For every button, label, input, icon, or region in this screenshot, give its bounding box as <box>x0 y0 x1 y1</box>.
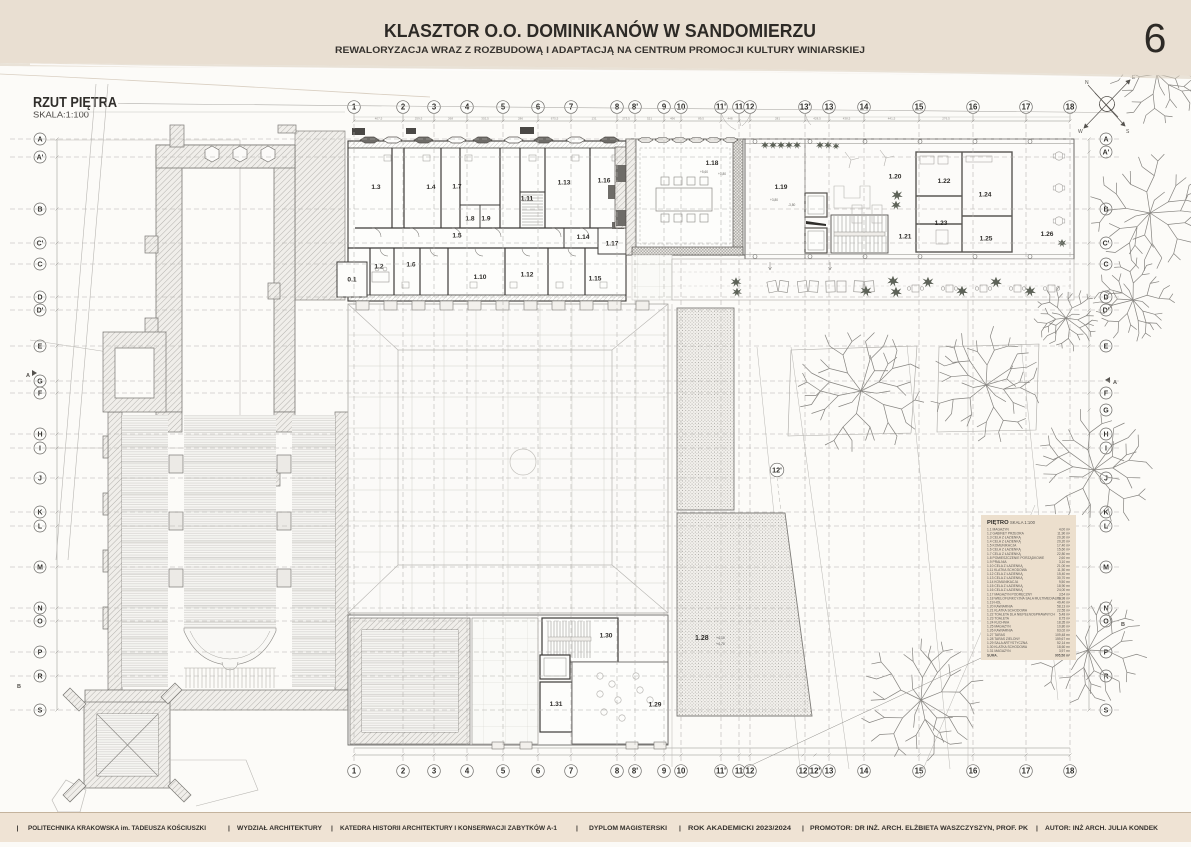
svg-text:1.4: 1.4 <box>426 184 435 191</box>
svg-text:+4,10: +4,10 <box>716 636 725 640</box>
svg-text:2: 2 <box>401 103 406 112</box>
svg-text:1.19: 1.19 <box>775 184 788 191</box>
svg-text:1: 1 <box>352 103 357 112</box>
svg-text:H: H <box>37 432 42 439</box>
svg-text:RZUT PIĘTRA: RZUT PIĘTRA <box>33 94 117 111</box>
svg-text:7: 7 <box>569 767 573 776</box>
svg-text:B: B <box>37 207 42 214</box>
svg-text:1.16: 1.16 <box>598 178 611 185</box>
svg-text:ROK AKADEMICKI 2023/2024: ROK AKADEMICKI 2023/2024 <box>688 825 791 832</box>
svg-text:1.28: 1.28 <box>695 635 709 642</box>
svg-text:4: 4 <box>465 767 470 776</box>
svg-text:D: D <box>37 295 42 302</box>
svg-text:DYPLOM MAGISTERSKI: DYPLOM MAGISTERSKI <box>589 825 667 832</box>
svg-text:1.2: 1.2 <box>374 264 383 271</box>
svg-text:12': 12' <box>810 767 821 776</box>
svg-text:11': 11' <box>716 767 726 776</box>
svg-text:KATEDRA HISTORII ARCHITEKTURY: KATEDRA HISTORII ARCHITEKTURY I KONSERWA… <box>340 823 557 832</box>
svg-text:PROMOTOR: DR INŻ. ARCH. ELŻBIE: PROMOTOR: DR INŻ. ARCH. ELŻBIETA WASZCZY… <box>810 824 1028 832</box>
svg-text:1.29: 1.29 <box>649 702 662 709</box>
svg-text:S: S <box>38 708 43 715</box>
svg-text:1.20: 1.20 <box>889 174 902 181</box>
svg-text:11: 11 <box>735 103 744 112</box>
svg-text:N: N <box>1085 80 1089 86</box>
svg-text:1.5: 1.5 <box>452 233 461 240</box>
svg-text:11': 11' <box>716 103 726 112</box>
svg-text:3,97 m²: 3,97 m² <box>1059 649 1071 653</box>
svg-text:1.30: 1.30 <box>600 633 613 640</box>
svg-text:+4,70: +4,70 <box>716 642 725 646</box>
svg-text:4: 4 <box>465 103 470 112</box>
svg-text:+3,80: +3,80 <box>718 172 726 176</box>
svg-text:POLITECHNIKA KRAKOWSKA im. TAD: POLITECHNIKA KRAKOWSKA im. TADEUSZA KOŚC… <box>28 823 206 832</box>
svg-text:O: O <box>37 619 43 626</box>
svg-text:D': D' <box>37 308 44 315</box>
svg-text:7: 7 <box>569 103 573 112</box>
svg-text:13: 13 <box>825 767 834 776</box>
svg-text:16: 16 <box>969 767 978 776</box>
svg-text:1.31: 1.31 <box>550 701 563 708</box>
svg-text:R: R <box>37 674 42 681</box>
svg-text:SUMA.: SUMA. <box>987 653 998 657</box>
svg-text:5: 5 <box>501 767 506 776</box>
svg-text:1.23: 1.23 <box>935 220 948 227</box>
svg-text:8': 8' <box>632 767 638 776</box>
svg-text:17: 17 <box>1022 103 1031 112</box>
svg-text:A: A <box>37 137 42 144</box>
svg-text:KLASZTOR O.O. DOMINIKANÓW W SA: KLASZTOR O.O. DOMINIKANÓW W SANDOMIERZU <box>384 20 816 41</box>
svg-text:17: 17 <box>1022 767 1031 776</box>
svg-text:18: 18 <box>1066 103 1075 112</box>
svg-text:1.25: 1.25 <box>980 236 993 243</box>
svg-text:B: B <box>1103 207 1108 214</box>
svg-text:C': C' <box>1103 241 1110 248</box>
svg-text:16: 16 <box>969 103 978 112</box>
svg-text:REWALORYZACJA WRAZ Z ROZBUDOWĄ: REWALORYZACJA WRAZ Z ROZBUDOWĄ I ADAPTAC… <box>335 45 865 56</box>
svg-text:1.31 MAGAZYN: 1.31 MAGAZYN <box>987 649 1011 653</box>
svg-text:+5,60: +5,60 <box>700 170 708 174</box>
svg-text:I: I <box>1105 446 1107 453</box>
svg-text:15: 15 <box>915 103 924 112</box>
svg-text:I: I <box>39 446 41 453</box>
svg-text:0.1: 0.1 <box>347 277 356 284</box>
svg-text:C': C' <box>37 241 44 248</box>
svg-text:F: F <box>38 391 43 398</box>
svg-text:M: M <box>37 565 43 572</box>
svg-text:N: N <box>37 606 42 613</box>
svg-text:18: 18 <box>1066 767 1075 776</box>
svg-text:P: P <box>38 650 43 657</box>
svg-text:B: B <box>17 684 21 690</box>
svg-text:13': 13' <box>800 103 811 112</box>
svg-text:PIĘTRO: PIĘTRO <box>987 520 1009 526</box>
svg-text:1.15: 1.15 <box>589 276 602 283</box>
svg-text:10: 10 <box>677 103 686 112</box>
svg-text:WYDZIAŁ ARCHITEKTURY: WYDZIAŁ ARCHITEKTURY <box>237 825 322 832</box>
svg-text:9: 9 <box>662 103 667 112</box>
svg-text:12: 12 <box>746 103 755 112</box>
svg-text:1.13: 1.13 <box>558 180 571 187</box>
svg-text:|: | <box>331 825 333 832</box>
svg-text:B: B <box>1121 622 1125 628</box>
svg-text:1.10: 1.10 <box>474 274 487 281</box>
svg-text:1: 1 <box>352 767 357 776</box>
svg-text:|: | <box>17 825 19 832</box>
svg-text:A': A' <box>37 155 44 162</box>
svg-text:-3,80: -3,80 <box>788 203 795 207</box>
svg-text:C: C <box>37 262 42 269</box>
svg-text:3: 3 <box>432 767 437 776</box>
svg-text:|: | <box>228 825 230 832</box>
svg-text:1.26: 1.26 <box>1041 231 1054 238</box>
svg-text:SKALA 1:100: SKALA 1:100 <box>1010 520 1036 525</box>
svg-text:8: 8 <box>615 767 620 776</box>
svg-text:1.7: 1.7 <box>452 184 461 191</box>
svg-text:|: | <box>679 825 681 832</box>
svg-text:E: E <box>1104 344 1109 351</box>
svg-text:|: | <box>576 825 578 832</box>
svg-text:1.9: 1.9 <box>481 216 490 223</box>
svg-text:10: 10 <box>677 767 686 776</box>
svg-text:A: A <box>1103 137 1108 144</box>
svg-text:9: 9 <box>662 767 667 776</box>
svg-text:L: L <box>1104 524 1109 531</box>
svg-text:8': 8' <box>632 103 638 112</box>
svg-text:1.22: 1.22 <box>938 178 951 185</box>
svg-text:G: G <box>1103 408 1109 415</box>
svg-text:1.14: 1.14 <box>577 234 590 241</box>
svg-text:G: G <box>37 379 43 386</box>
svg-text:M: M <box>1103 565 1109 572</box>
svg-text:12: 12 <box>746 767 755 776</box>
svg-text:F: F <box>1104 391 1109 398</box>
svg-text:H: H <box>1103 432 1108 439</box>
svg-text:11: 11 <box>735 767 744 776</box>
svg-text:2: 2 <box>401 767 406 776</box>
svg-text:1.24: 1.24 <box>979 192 992 199</box>
svg-text:AUTOR: INŻ ARCH. JULIA KONDEK: AUTOR: INŻ ARCH. JULIA KONDEK <box>1045 824 1158 832</box>
svg-text:A: A <box>26 373 30 379</box>
svg-text:C: C <box>1103 262 1108 269</box>
svg-text:3: 3 <box>432 103 437 112</box>
svg-text:1.3: 1.3 <box>371 184 380 191</box>
svg-text:1.12: 1.12 <box>521 272 534 279</box>
svg-text:K: K <box>37 510 42 517</box>
svg-text:8: 8 <box>615 103 620 112</box>
svg-text:E: E <box>38 344 43 351</box>
svg-text:14: 14 <box>860 767 869 776</box>
svg-text:1.6: 1.6 <box>406 262 415 269</box>
svg-text:905,56 m²: 905,56 m² <box>1055 653 1071 657</box>
svg-text:|: | <box>1036 825 1038 832</box>
svg-text:S: S <box>1104 708 1109 715</box>
svg-text:A': A' <box>1103 150 1110 157</box>
svg-text:6: 6 <box>536 767 541 776</box>
svg-text:W: W <box>1078 129 1083 135</box>
svg-text:1.21: 1.21 <box>899 234 912 241</box>
svg-text:1.18: 1.18 <box>706 160 719 167</box>
svg-text:L: L <box>38 524 43 531</box>
svg-text:12': 12' <box>772 466 782 475</box>
svg-text:|: | <box>802 825 804 832</box>
svg-text:1.11: 1.11 <box>521 196 534 203</box>
svg-text:6: 6 <box>1144 15 1167 61</box>
svg-text:J: J <box>38 476 42 483</box>
svg-text:+3,80: +3,80 <box>770 198 778 202</box>
